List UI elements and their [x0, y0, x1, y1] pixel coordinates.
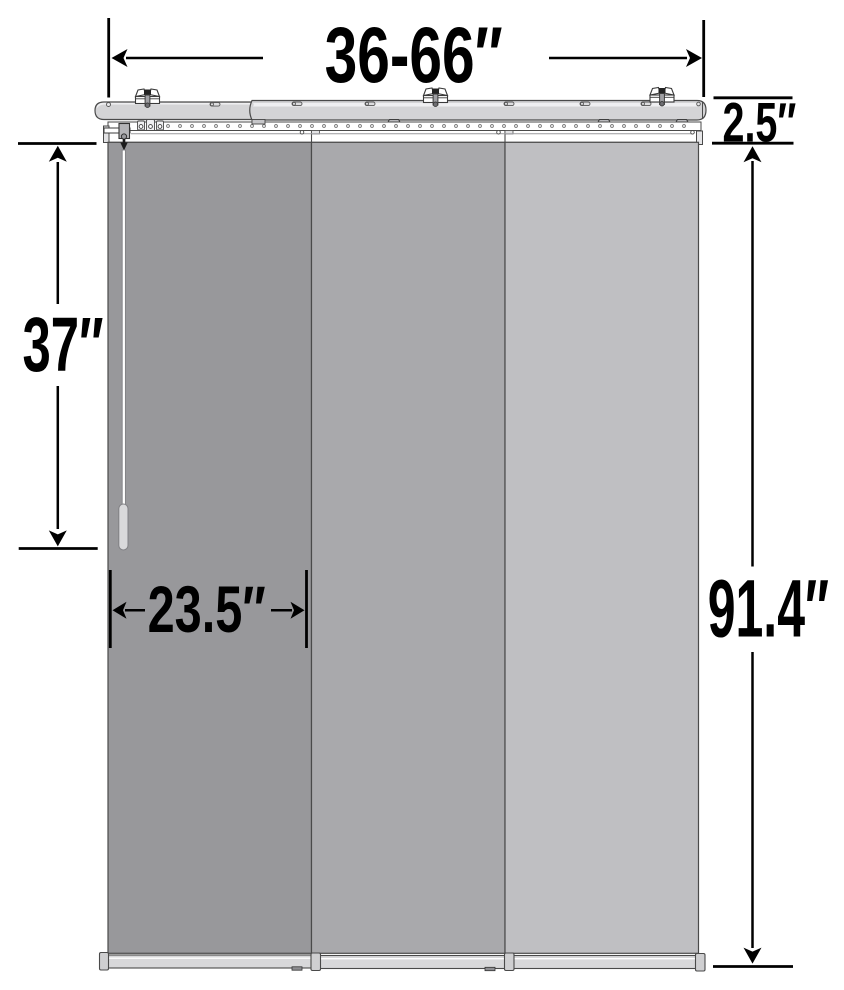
svg-text:91.4″: 91.4″: [708, 564, 829, 654]
svg-text:2.5″: 2.5″: [723, 92, 797, 154]
svg-text:36-66″: 36-66″: [325, 11, 503, 100]
svg-text:37″: 37″: [23, 301, 104, 387]
svg-text:23.5″: 23.5″: [148, 573, 266, 647]
